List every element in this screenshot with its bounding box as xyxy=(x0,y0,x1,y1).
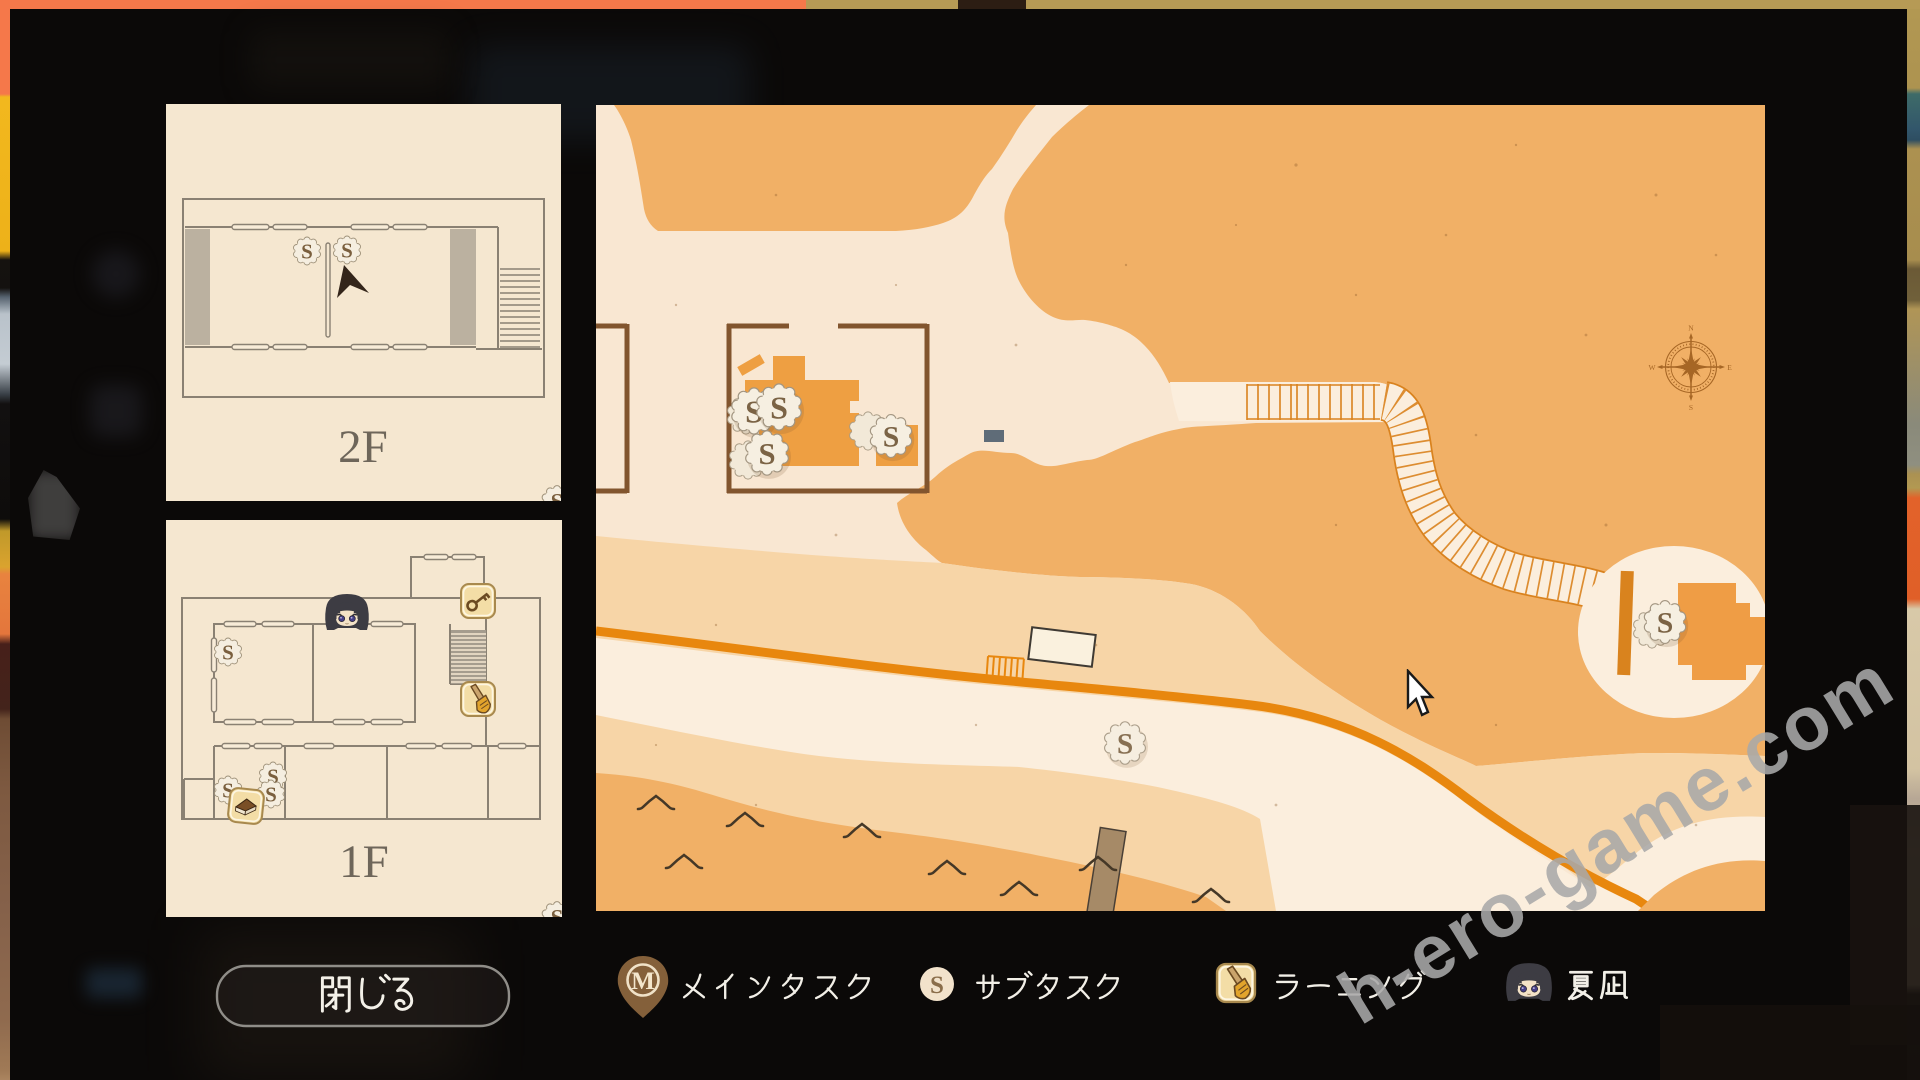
svg-text:N: N xyxy=(1688,324,1694,333)
svg-text:S: S xyxy=(1689,403,1693,412)
svg-text:E: E xyxy=(1727,363,1732,372)
svg-text:1F: 1F xyxy=(339,836,389,888)
svg-text:2F: 2F xyxy=(338,421,388,473)
svg-text:S: S xyxy=(930,972,944,999)
svg-text:M: M xyxy=(631,968,655,995)
svg-text:W: W xyxy=(1648,363,1656,372)
